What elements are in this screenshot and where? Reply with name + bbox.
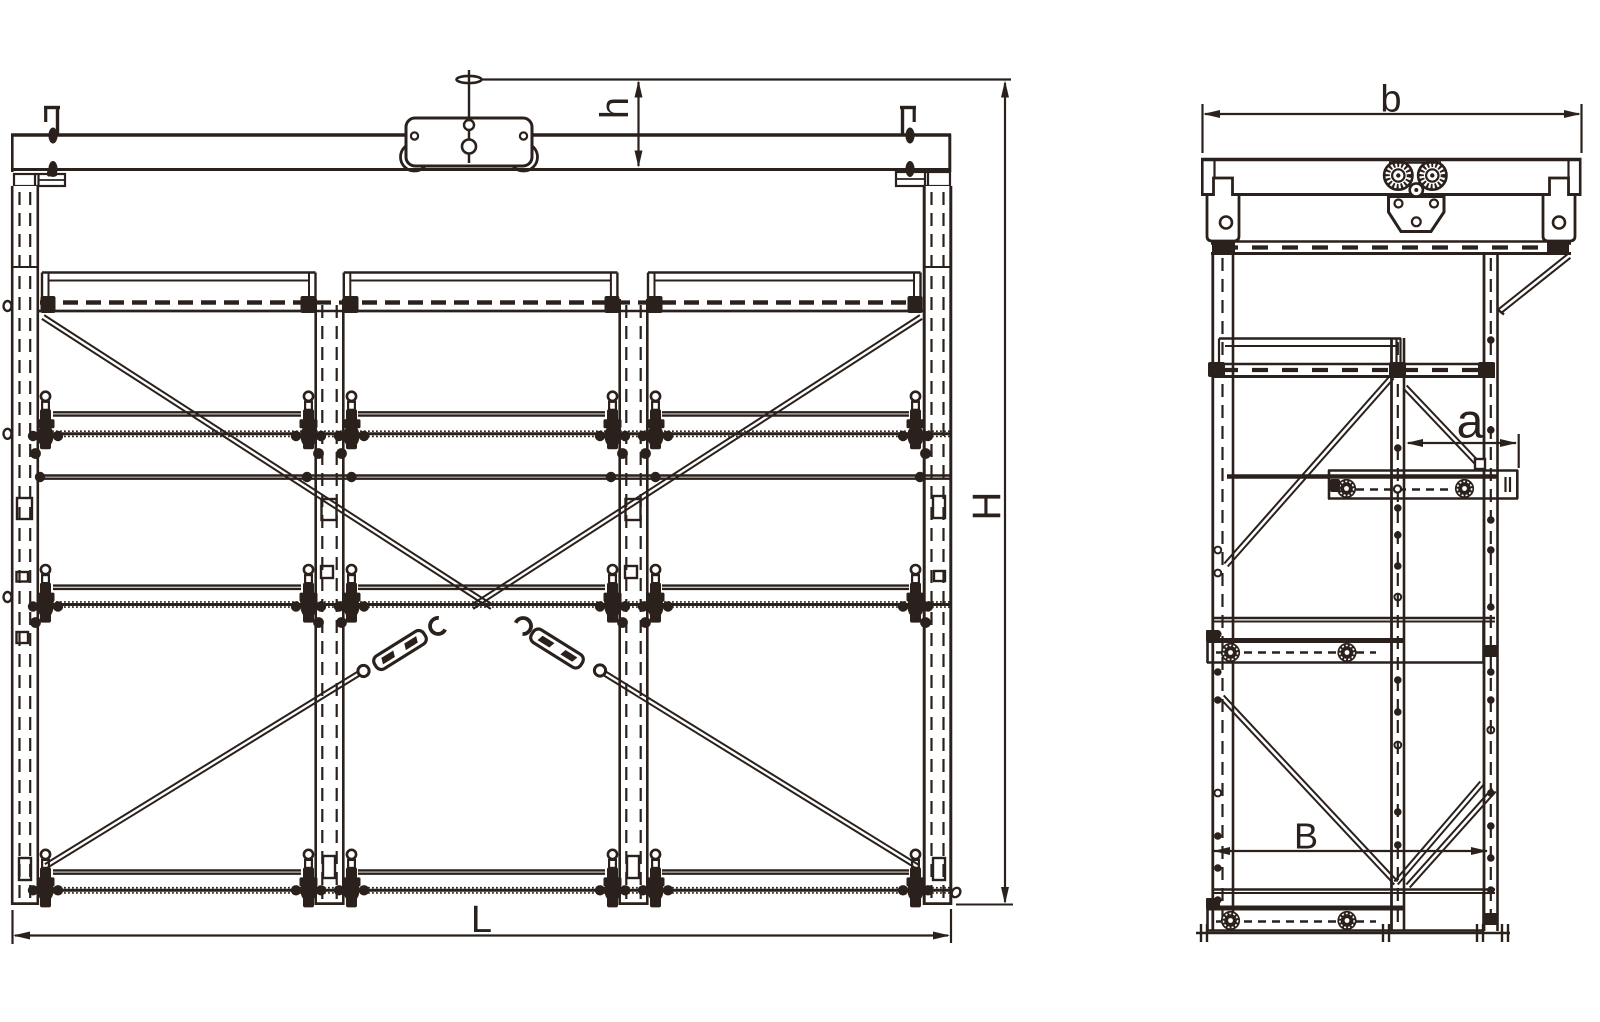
svg-text:b: b: [1380, 79, 1401, 121]
svg-text:L: L: [471, 899, 492, 941]
svg-text:H: H: [965, 492, 1009, 521]
svg-text:h: h: [593, 97, 637, 119]
svg-text:B: B: [1294, 816, 1318, 857]
svg-text:a: a: [1457, 396, 1484, 449]
